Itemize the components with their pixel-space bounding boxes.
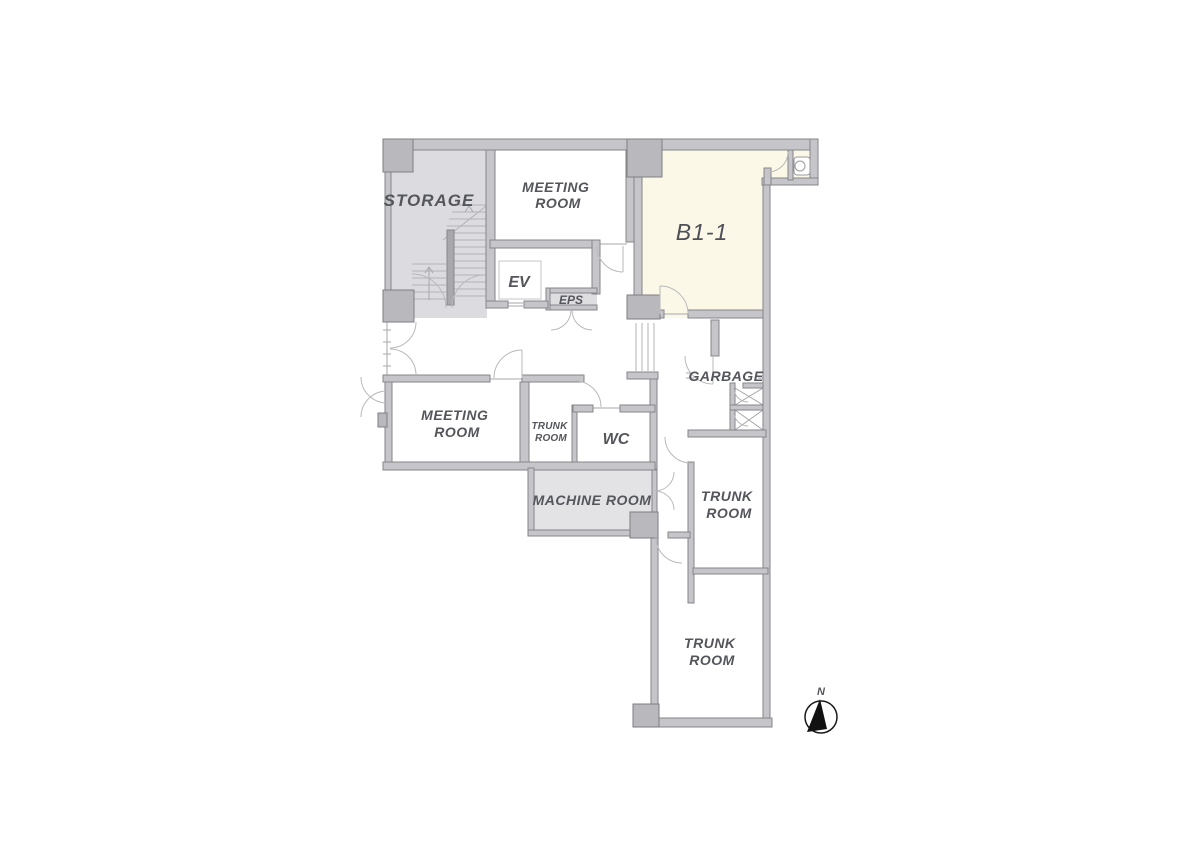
wall-trunk-divider <box>693 568 768 574</box>
toilet-icon <box>794 157 810 175</box>
wall-toilet-nook-divider <box>788 150 793 180</box>
trunk-room-bottom-label: TRUNK ROOM <box>684 635 740 668</box>
eps-door-arc-left <box>551 310 571 330</box>
machine-room-label: MACHINE ROOM <box>533 492 652 508</box>
wall-garbage-stub <box>711 320 719 356</box>
pillar-top-center <box>627 139 662 177</box>
wall-corridor-door-stub <box>668 532 690 538</box>
elevator-label: EV <box>508 274 531 291</box>
pillar-machine-room <box>630 512 658 538</box>
left-corridor-window <box>383 322 391 375</box>
wall-mid-top-a <box>383 375 490 382</box>
stair-stringer-wall <box>447 230 454 305</box>
pillar-top-left <box>383 139 413 172</box>
machine-door-arc-2 <box>655 491 674 510</box>
wall-top-outer <box>385 139 818 150</box>
meeting-top-door-arc <box>597 246 623 272</box>
meeting-lower-door-arc <box>494 350 522 378</box>
wall-bottom-left <box>651 536 658 706</box>
wall-right-outer-main <box>763 185 770 727</box>
compass: N <box>805 686 837 733</box>
wall-mid-top-b <box>522 375 584 382</box>
trunk-room-small-label: TRUNK ROOM <box>532 421 571 444</box>
trunk-room-middle-label: TRUNK ROOM <box>701 488 757 521</box>
wall-meeting-trunk-divider <box>520 382 529 462</box>
corridor-bottom-door-arc <box>656 537 682 563</box>
garbage-label: GARBAGE <box>688 368 763 384</box>
compass-north-label: N <box>817 686 826 698</box>
wall-b1-left <box>634 176 642 312</box>
wc-door-arc <box>575 381 601 407</box>
left-corridor-door-arc-2 <box>390 349 416 375</box>
wall-mid-bottom <box>383 462 655 470</box>
wall-storage-divider <box>486 150 495 305</box>
wall-ev-bottom-right <box>524 301 548 308</box>
wall-wc-top-a <box>573 405 593 412</box>
corridor-hatch <box>636 323 654 371</box>
pillar-entry-stub <box>378 413 387 427</box>
wall-ev-lobby-right <box>592 240 600 294</box>
left-corridor-door-arc-1 <box>390 322 416 348</box>
eps-label: EPS <box>559 293 583 307</box>
wall-trunk-wc-divider <box>572 405 577 462</box>
storage-label: STORAGE <box>384 191 475 210</box>
unit-b1-1-label: B1-1 <box>676 219 729 245</box>
wall-b1-bottom <box>688 310 770 318</box>
wall-closet-divider <box>730 405 763 410</box>
wall-wc-top-b <box>620 405 655 412</box>
trunk-middle-door-arc <box>665 437 691 463</box>
wall-wc-right <box>650 379 657 469</box>
pillar-b1-bottom-left <box>627 295 660 319</box>
meeting-room-lower-label: MEETING ROOM <box>421 407 493 440</box>
wall-ev-bottom-left <box>486 301 508 308</box>
wall-garbage-bottom <box>688 430 766 437</box>
wall-toilet-nook-left-stub <box>764 168 771 185</box>
wall-machine-bottom <box>528 530 633 536</box>
pillar-bottom-left <box>633 704 659 727</box>
machine-door-arc-1 <box>655 472 674 491</box>
pillar-mid-left <box>383 290 414 322</box>
floor-plan-drawing: STORAGE MEETING ROOM B1-1 EV EPS MEETING… <box>0 0 1191 842</box>
floor-plan-page: STORAGE MEETING ROOM B1-1 EV EPS MEETING… <box>0 0 1191 842</box>
meeting-room-top-label: MEETING ROOM <box>522 179 594 211</box>
eps-door-arc-right <box>572 310 592 330</box>
wall-corridor-stub <box>627 372 658 379</box>
wall-meeting-top-bottom <box>490 240 600 248</box>
wc-label: WC <box>603 431 630 448</box>
